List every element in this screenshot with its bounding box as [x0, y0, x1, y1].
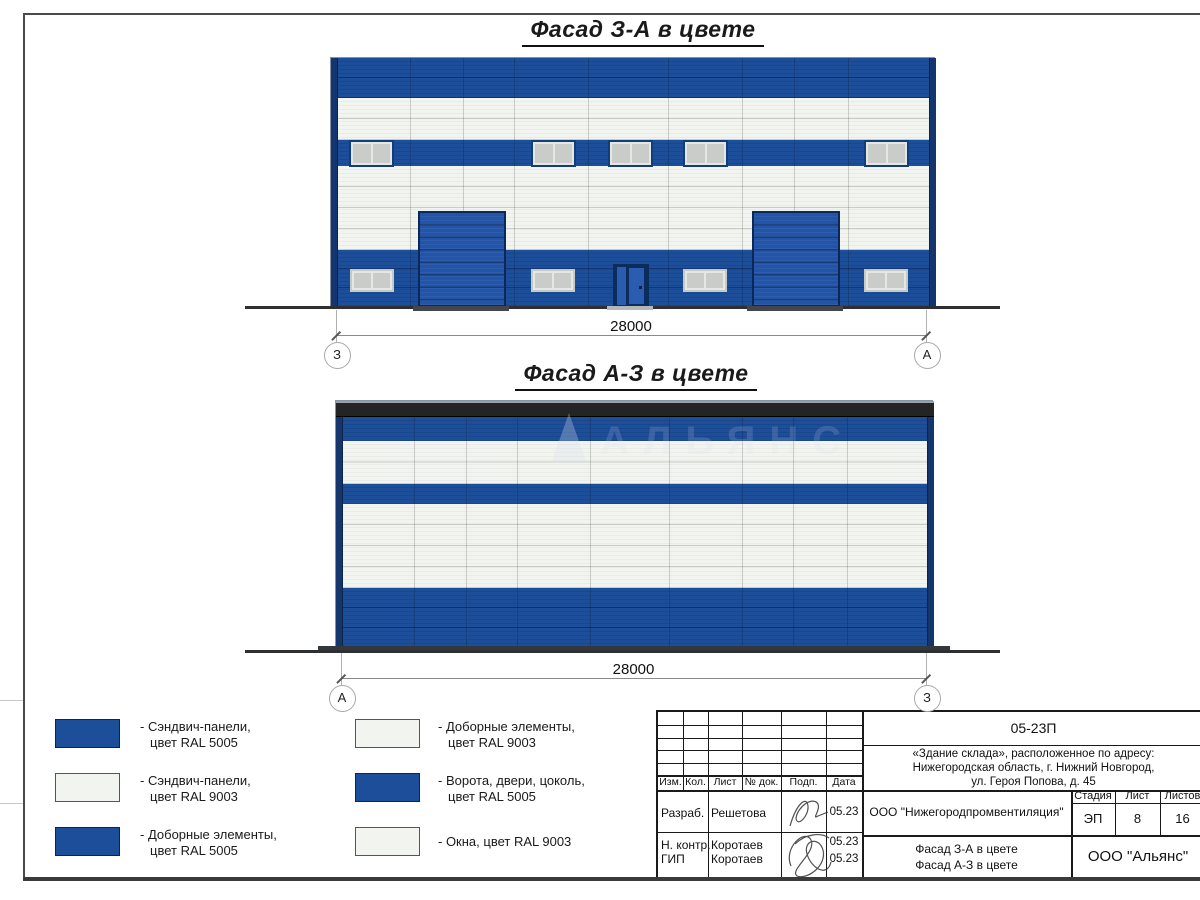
sheet-title-line1: Фасад З-А в цвете	[862, 841, 1071, 857]
panel-joint	[848, 58, 849, 307]
project-address: «Здание склада», расположенное по адресу…	[862, 745, 1200, 792]
door-sidelight	[617, 267, 626, 305]
window	[350, 269, 394, 292]
legend-label: - Ворота, двери, цоколь,цвет RAL 5005	[438, 773, 585, 804]
legend-label: - Сэндвич-панели,цвет RAL 5005	[140, 719, 251, 750]
panel-joint	[514, 58, 515, 307]
window	[349, 140, 394, 167]
dimension-label: 28000	[574, 661, 694, 678]
project-address-line2: Нижегородская область, г. Нижний Новгоро…	[862, 761, 1200, 775]
facade-panel-band-white	[331, 98, 936, 140]
doc-number: 05-23П	[862, 712, 1200, 745]
facade-a3-title: Фасад А-З в цвете	[436, 360, 836, 387]
listov-value: 16	[1160, 803, 1200, 835]
stamp-grid-line	[1160, 790, 1161, 835]
legend-label-line: цвет RAL 9003	[438, 735, 575, 751]
window	[683, 269, 727, 292]
panel-joint	[517, 417, 518, 649]
legend-label-line: - Доборные элементы,	[438, 719, 575, 735]
legend-label-line: цвет RAL 5005	[140, 735, 251, 751]
row-role-gip: ГИП	[661, 852, 715, 866]
project-address-line1: «Здание склада», расположенное по адресу…	[862, 747, 1200, 761]
stamp-grid-line	[862, 745, 1200, 746]
legend-label-line: - Сэндвич-панели,	[140, 719, 251, 735]
sheet-frame-bottom	[23, 877, 1200, 881]
axis-marker-left: З	[324, 342, 351, 369]
legend-label: - Доборные элементы,цвет RAL 5005	[140, 827, 277, 858]
column-header-list: Лист	[708, 775, 742, 790]
column-header-izm: Изм.	[658, 775, 683, 790]
stamp-grid-line	[658, 775, 862, 777]
legend-label-line: цвет RAL 5005	[140, 843, 277, 859]
stamp-grid-line	[658, 750, 862, 751]
stamp-grid-line	[658, 738, 862, 739]
window-pane	[888, 144, 906, 163]
row-role-nkontr: Н. контр.	[661, 838, 715, 852]
dimension-line	[336, 335, 926, 336]
company-name: ООО "Альянс"	[1071, 835, 1200, 878]
title-block: 05-23П «Здание склада», расположенное по…	[656, 710, 1200, 880]
fold-mark	[0, 700, 23, 701]
panel-joint	[668, 58, 669, 307]
corner-trim-left	[336, 417, 343, 649]
panel-joint	[588, 58, 589, 307]
stamp-grid-line	[1071, 803, 1200, 804]
gate-ramp	[413, 306, 509, 311]
stamp-grid-line	[658, 725, 862, 726]
panel-joint	[466, 417, 467, 649]
legend-swatch	[55, 773, 120, 802]
dimension-line	[341, 678, 926, 679]
legend-label: - Сэндвич-панели,цвет RAL 9003	[140, 773, 251, 804]
organization-name: ООО "Нижегородпромвентиляция"	[862, 790, 1071, 835]
axis-marker-left: А	[329, 685, 356, 712]
stamp-grid-line	[862, 835, 1200, 837]
window-pane	[555, 144, 573, 163]
facade-3a-drawing	[330, 57, 935, 306]
window-pane	[354, 273, 371, 288]
legend-swatch	[55, 827, 120, 856]
legend-label-line: - Ворота, двери, цоколь,	[438, 773, 585, 789]
legend-swatch	[355, 719, 420, 748]
sheet-frame-left	[23, 13, 25, 878]
sheet-title-line2: Фасад А-З в цвете	[862, 857, 1071, 873]
gate	[418, 211, 506, 307]
row-name-gip: Коротаев	[711, 852, 783, 866]
window-pane	[868, 144, 886, 163]
window-pane	[706, 273, 723, 288]
window	[531, 140, 576, 167]
window-pane	[535, 273, 552, 288]
window-pane	[687, 144, 705, 163]
corner-trim-left	[331, 58, 338, 307]
panel-joint	[742, 58, 743, 307]
window-pane	[612, 144, 630, 163]
gate-ramp	[747, 306, 843, 311]
window	[531, 269, 575, 292]
window-pane	[687, 273, 704, 288]
project-address-line3: ул. Героя Попова, д. 45	[862, 775, 1200, 789]
sheet-frame-top	[23, 13, 1200, 15]
door-leaf	[628, 267, 645, 305]
facade-3a-title-text: Фасад З-А в цвете	[522, 16, 763, 47]
dimension-label: 28000	[571, 318, 691, 335]
axis-marker-right: З	[914, 685, 941, 712]
window-pane	[373, 144, 391, 163]
panel-joint	[410, 58, 411, 307]
stamp-grid-line	[742, 712, 743, 790]
facade-a3-drawing: АЛЬЯНС	[335, 400, 933, 648]
stamp-grid-line	[658, 790, 1200, 792]
row-role-razrab: Разраб.	[661, 806, 711, 820]
door	[613, 264, 649, 308]
window	[683, 140, 728, 167]
legend-label-line: цвет RAL 9003	[140, 789, 251, 805]
facade-panel-band-blue	[336, 588, 934, 649]
fold-mark	[0, 803, 23, 804]
signature	[781, 824, 835, 880]
window	[864, 140, 909, 167]
stamp-grid-line	[658, 763, 862, 764]
stamp-grid-line	[862, 712, 864, 878]
column-header-podp: Подп.	[781, 775, 826, 790]
corner-trim-right	[929, 58, 936, 307]
panel-joint	[414, 417, 415, 649]
window-pane	[707, 144, 725, 163]
column-header-kol: Кол.	[683, 775, 708, 790]
window-pane	[887, 273, 904, 288]
row-date-razrab: 05.23	[826, 806, 862, 820]
window-pane	[353, 144, 371, 163]
window-pane	[373, 273, 390, 288]
legend-swatch	[55, 719, 120, 748]
signature-stroke	[781, 824, 835, 880]
stamp-grid-line	[683, 712, 684, 790]
row-name-nkontr: Коротаев	[711, 838, 783, 852]
window-pane	[535, 144, 553, 163]
stage-value: ЭП	[1071, 803, 1115, 835]
legend-swatch	[355, 773, 420, 802]
facade-3a-title: Фасад З-А в цвете	[443, 16, 843, 43]
door-threshold	[607, 306, 653, 310]
row-name-razrab: Решетова	[711, 806, 783, 820]
window	[608, 140, 653, 167]
window-pane	[632, 144, 650, 163]
legend-label-line: - Доборные элементы,	[140, 827, 277, 843]
watermark-text: АЛЬЯНС	[600, 419, 855, 464]
legend-label: - Окна, цвет RAL 9003	[438, 834, 571, 850]
legend-label-line: цвет RAL 5005	[438, 789, 585, 805]
ground-line	[245, 650, 1000, 653]
list-value: 8	[1115, 803, 1160, 835]
door-handle	[639, 286, 642, 289]
window	[864, 269, 908, 292]
facade-a3-title-text: Фасад А-З в цвете	[515, 360, 756, 391]
facade-panel-band-blue	[331, 58, 936, 98]
watermark: АЛЬЯНС	[544, 411, 934, 473]
legend-swatch	[355, 827, 420, 856]
column-header-ndok: № док.	[742, 775, 781, 790]
stamp-grid-line	[1115, 790, 1116, 835]
watermark-triangle-icon	[552, 413, 586, 461]
column-header-data: Дата	[826, 775, 862, 790]
legend-label-line: - Сэндвич-панели,	[140, 773, 251, 789]
gate	[752, 211, 840, 307]
legend-label: - Доборные элементы,цвет RAL 9003	[438, 719, 575, 750]
window-pane	[868, 273, 885, 288]
facade-panel-band-blue	[336, 484, 934, 504]
facade-panel-band-white	[336, 504, 934, 588]
axis-marker-right: А	[914, 342, 941, 369]
legend-label-line: - Окна, цвет RAL 9003	[438, 834, 571, 850]
window-pane	[554, 273, 571, 288]
